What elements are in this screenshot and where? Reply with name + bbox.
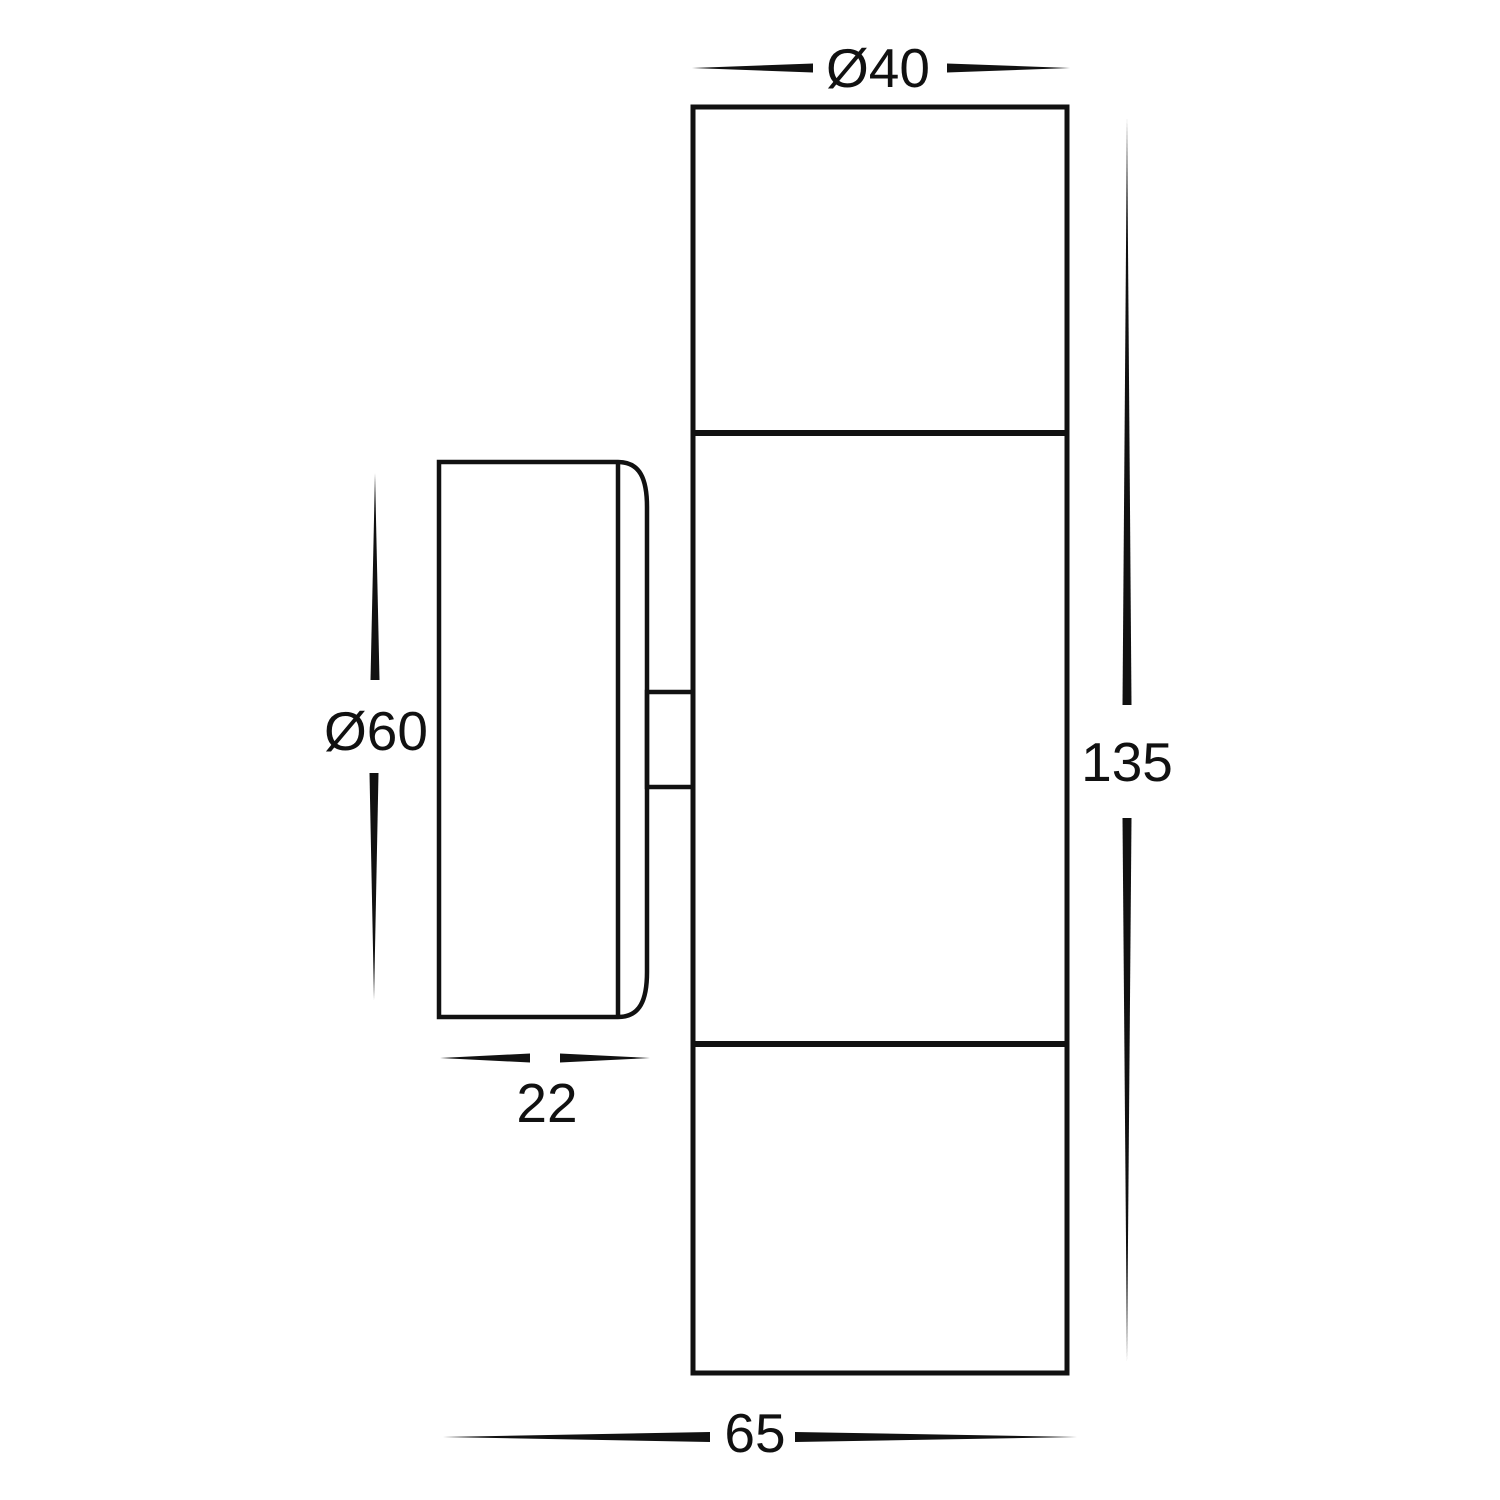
dimension-label-plate-diameter: Ø60 bbox=[324, 700, 428, 762]
dimension-arrow-right-icon bbox=[947, 64, 1070, 73]
dimension-arrow-up-icon bbox=[1123, 117, 1132, 705]
dimension-label-body-height: 135 bbox=[1081, 731, 1173, 793]
dimension-body-height: 135 bbox=[1081, 117, 1173, 1362]
dimension-label-overall-depth: 65 bbox=[724, 1402, 785, 1464]
fixture-body bbox=[693, 107, 1067, 1373]
dimension-arrow-right-icon bbox=[795, 1432, 1077, 1442]
dimension-drawing-canvas: Ø40 Ø60 135 22 65 bbox=[0, 0, 1500, 1500]
dimension-plate-depth: 22 bbox=[440, 1054, 650, 1135]
dimension-arrow-down-icon bbox=[1123, 818, 1132, 1362]
dimension-arrow-up-icon bbox=[371, 473, 380, 680]
dimension-arrow-down-icon bbox=[370, 773, 379, 1000]
mounting-plate bbox=[439, 462, 693, 1017]
dimension-body-diameter: Ø40 bbox=[692, 37, 1070, 99]
dimension-arrow-right-icon bbox=[560, 1054, 650, 1063]
fixture-body-outline bbox=[693, 107, 1067, 1373]
wall-light-dimension-drawing: Ø40 Ø60 135 22 65 bbox=[0, 0, 1500, 1500]
dimension-overall-depth: 65 bbox=[443, 1402, 1077, 1464]
dimension-label-body-diameter: Ø40 bbox=[826, 37, 930, 99]
dimension-arrow-left-icon bbox=[692, 64, 813, 73]
mounting-arm-connector bbox=[647, 692, 693, 787]
dimension-plate-diameter: Ø60 bbox=[324, 473, 428, 1000]
mounting-plate-outline bbox=[439, 462, 647, 1017]
dimension-label-plate-depth: 22 bbox=[516, 1072, 577, 1134]
dimension-arrow-left-icon bbox=[440, 1054, 530, 1063]
dimension-arrow-left-icon bbox=[443, 1432, 710, 1442]
